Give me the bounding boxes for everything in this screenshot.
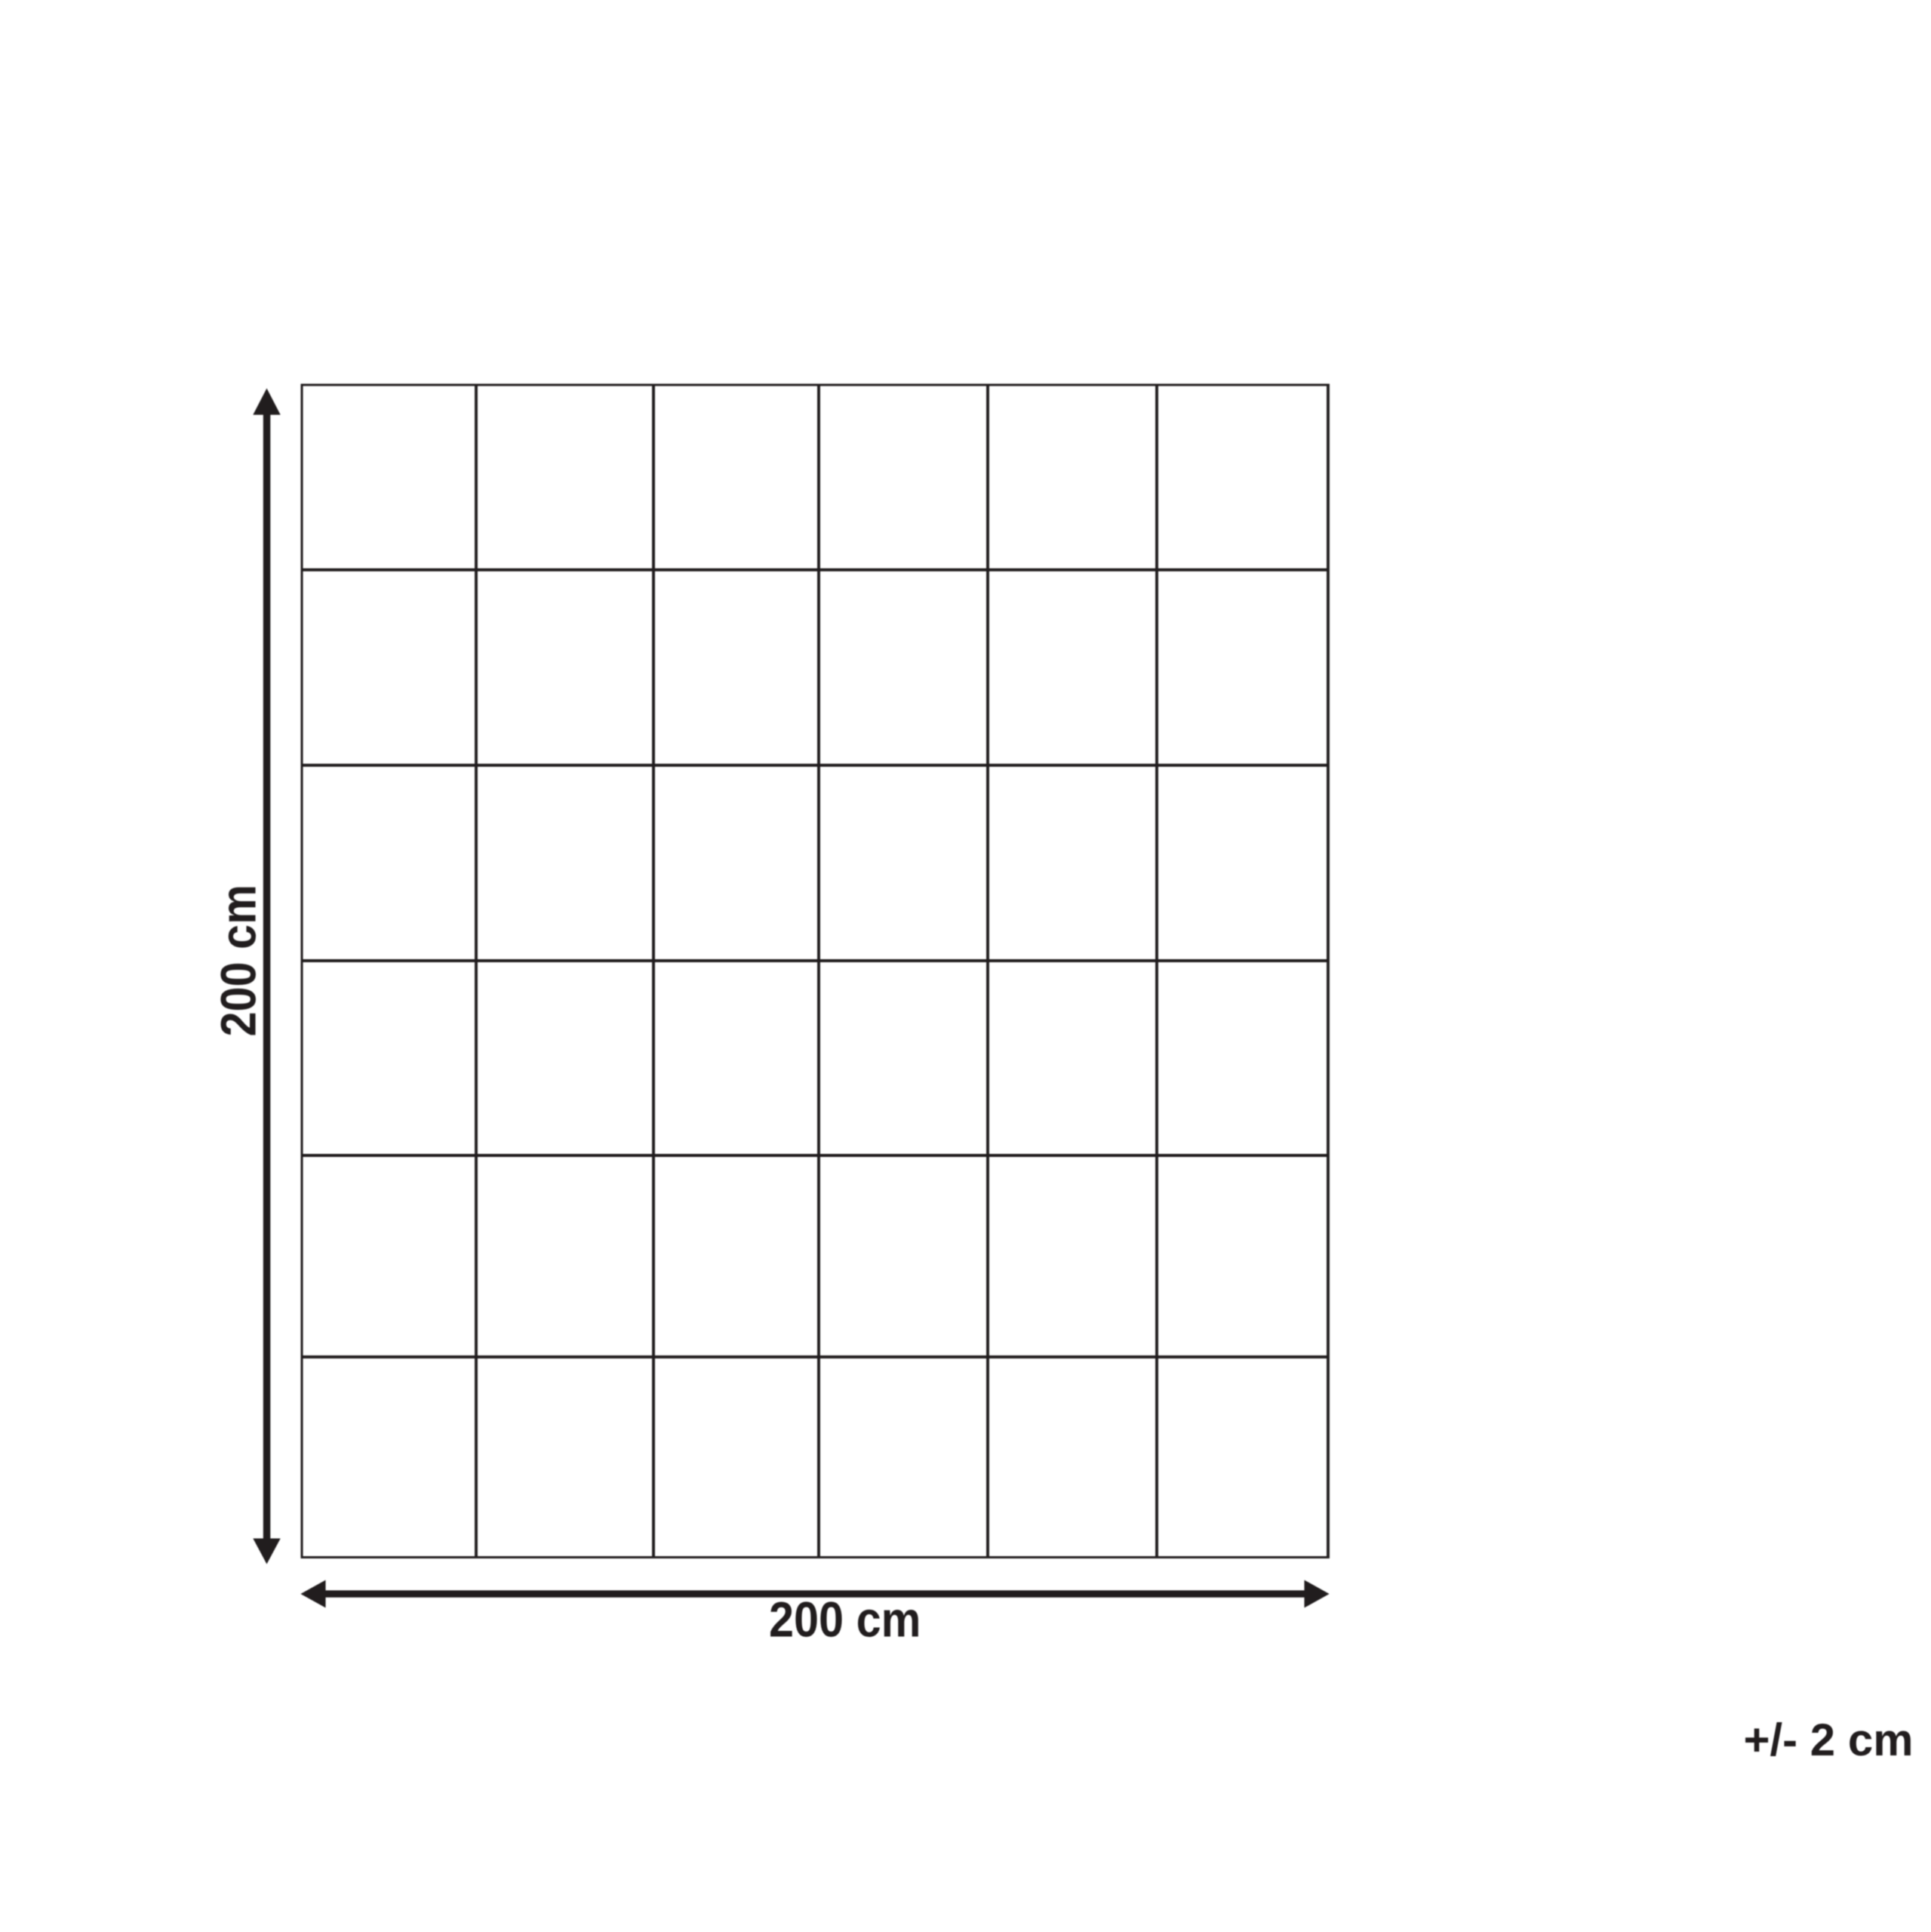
svg-text:200 cm: 200 cm bbox=[211, 884, 267, 1036]
svg-text:+/- 2 cm: +/- 2 cm bbox=[1743, 1715, 1913, 1765]
svg-text:200 cm: 200 cm bbox=[769, 1592, 921, 1648]
